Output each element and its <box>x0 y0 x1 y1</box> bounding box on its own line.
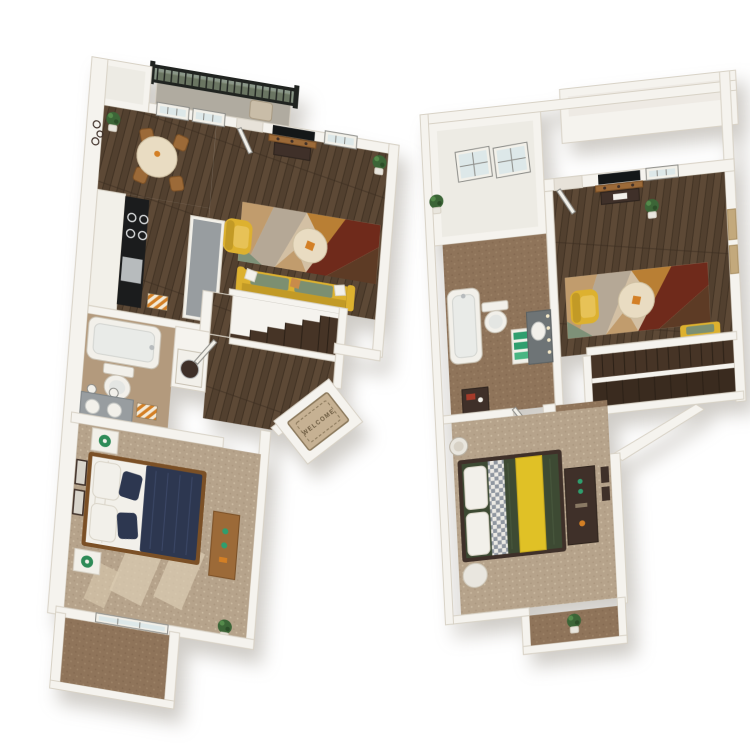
nightstand <box>462 387 489 414</box>
wall-frame-1 <box>75 460 87 486</box>
floor-plan-right-unit <box>420 70 750 663</box>
window-upper-1 <box>455 146 492 182</box>
wall-art-dark-1 <box>601 466 610 483</box>
bed <box>457 449 566 562</box>
bedroom <box>55 398 270 650</box>
oven <box>121 256 143 283</box>
living-room <box>544 159 743 358</box>
bed <box>81 451 207 565</box>
balcony-chair <box>249 100 272 122</box>
window-upper-2 <box>493 142 530 178</box>
bedroom <box>443 396 627 624</box>
wall-art-1 <box>727 209 737 240</box>
kitchen-mat <box>147 293 168 310</box>
upper-closet-block <box>426 112 547 247</box>
nightstand-top <box>91 428 119 454</box>
bath-mat <box>136 403 157 420</box>
floorplan-svg: WELCOME <box>0 0 750 750</box>
vanity <box>526 310 553 365</box>
wall-art-2 <box>729 245 738 274</box>
understair-closet <box>210 292 233 337</box>
tv-wall-unit <box>595 170 644 205</box>
desk <box>209 511 240 579</box>
floor-plan-left-unit: WELCOME <box>42 51 403 740</box>
floorplan-rendering: WELCOME <box>0 0 750 750</box>
wall-frame-2 <box>73 490 85 516</box>
accent-chair <box>222 217 253 256</box>
wall-art-dark-2 <box>602 486 611 501</box>
laundry-closet <box>171 326 210 392</box>
nightstand-bottom <box>73 548 101 574</box>
bathtub <box>447 287 483 365</box>
dresser <box>564 466 598 545</box>
accent-chair <box>570 288 600 325</box>
